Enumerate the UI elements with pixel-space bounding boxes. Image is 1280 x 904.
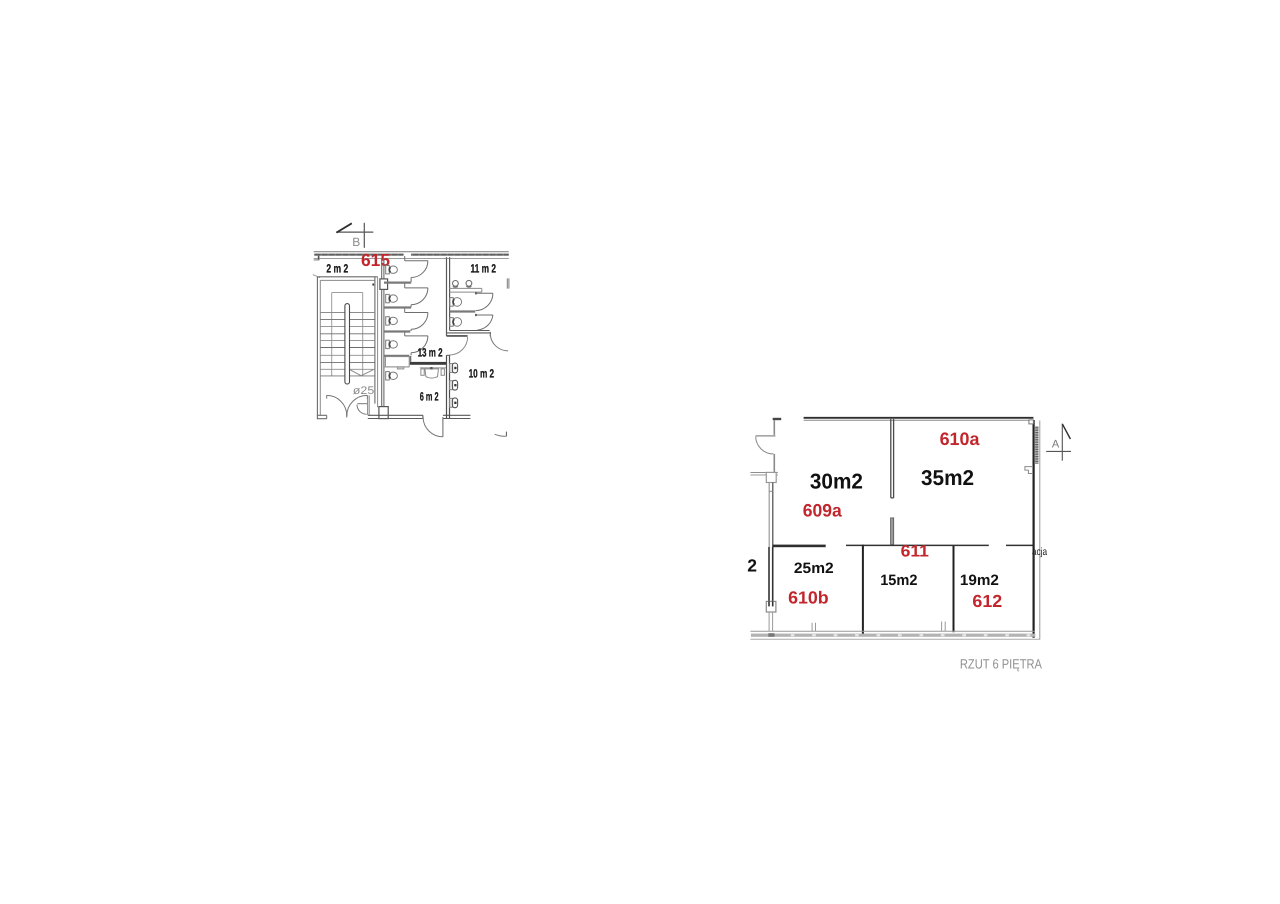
svg-text:610a: 610a <box>940 429 981 449</box>
svg-text:19m2: 19m2 <box>960 572 999 589</box>
svg-text:30m2: 30m2 <box>810 469 863 493</box>
svg-text:610b: 610b <box>788 588 829 608</box>
svg-text:35m2: 35m2 <box>921 466 974 490</box>
svg-text:acja: acja <box>1032 546 1047 558</box>
svg-text:611: 611 <box>901 543 929 561</box>
svg-text:11 m 2: 11 m 2 <box>471 261 497 275</box>
svg-text:10 m 2: 10 m 2 <box>469 366 495 380</box>
svg-text:A: A <box>1052 438 1060 450</box>
svg-text:15m2: 15m2 <box>880 572 917 589</box>
svg-text:2 m 2: 2 m 2 <box>326 261 348 275</box>
svg-text:6 m 2: 6 m 2 <box>420 389 439 403</box>
svg-text:25m2: 25m2 <box>794 560 834 577</box>
svg-text:13 m 2: 13 m 2 <box>418 345 443 359</box>
svg-text:2: 2 <box>747 555 757 575</box>
svg-text:612: 612 <box>972 591 1002 611</box>
svg-text:RZUT 6 PIĘTRA: RZUT 6 PIĘTRA <box>960 656 1042 671</box>
svg-text:609a: 609a <box>803 501 843 521</box>
svg-text:B: B <box>352 235 360 249</box>
